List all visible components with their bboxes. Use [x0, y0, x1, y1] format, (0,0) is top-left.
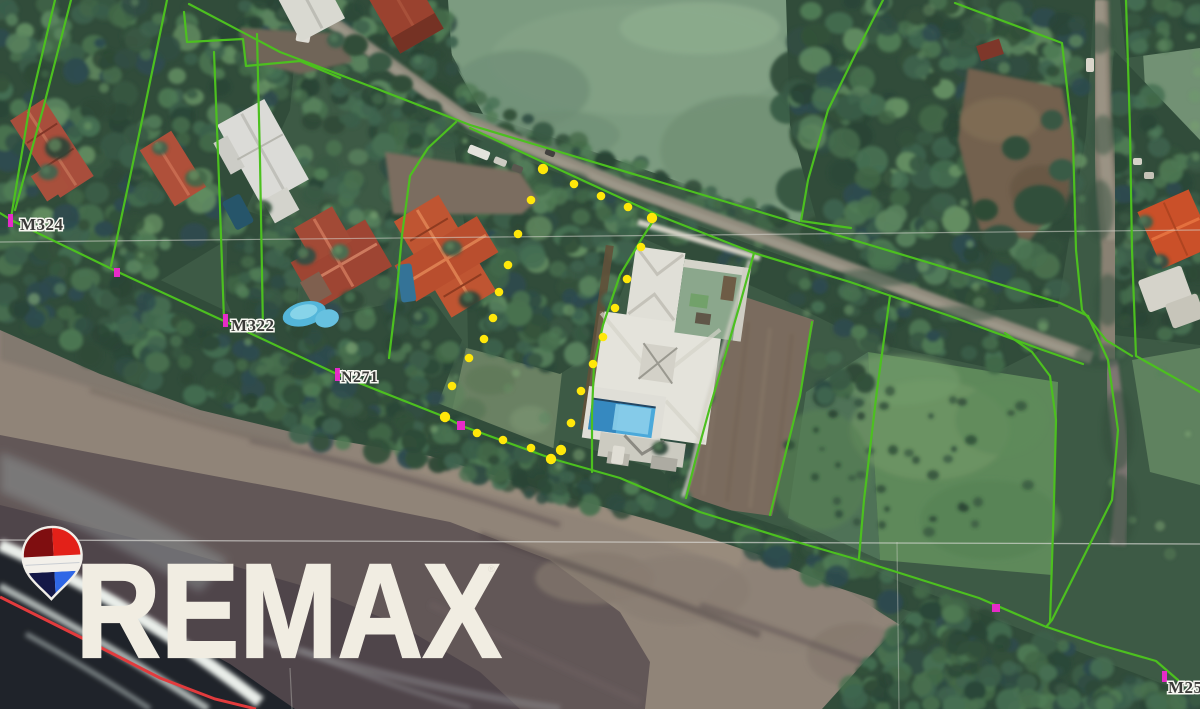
svg-text:®: ®: [488, 564, 495, 574]
svg-text:M322: M322: [231, 316, 275, 335]
svg-text:N271: N271: [341, 369, 379, 386]
svg-text:M324: M324: [20, 215, 64, 234]
svg-text:M25: M25: [1168, 678, 1200, 697]
svg-text:REMAX: REMAX: [76, 537, 502, 686]
